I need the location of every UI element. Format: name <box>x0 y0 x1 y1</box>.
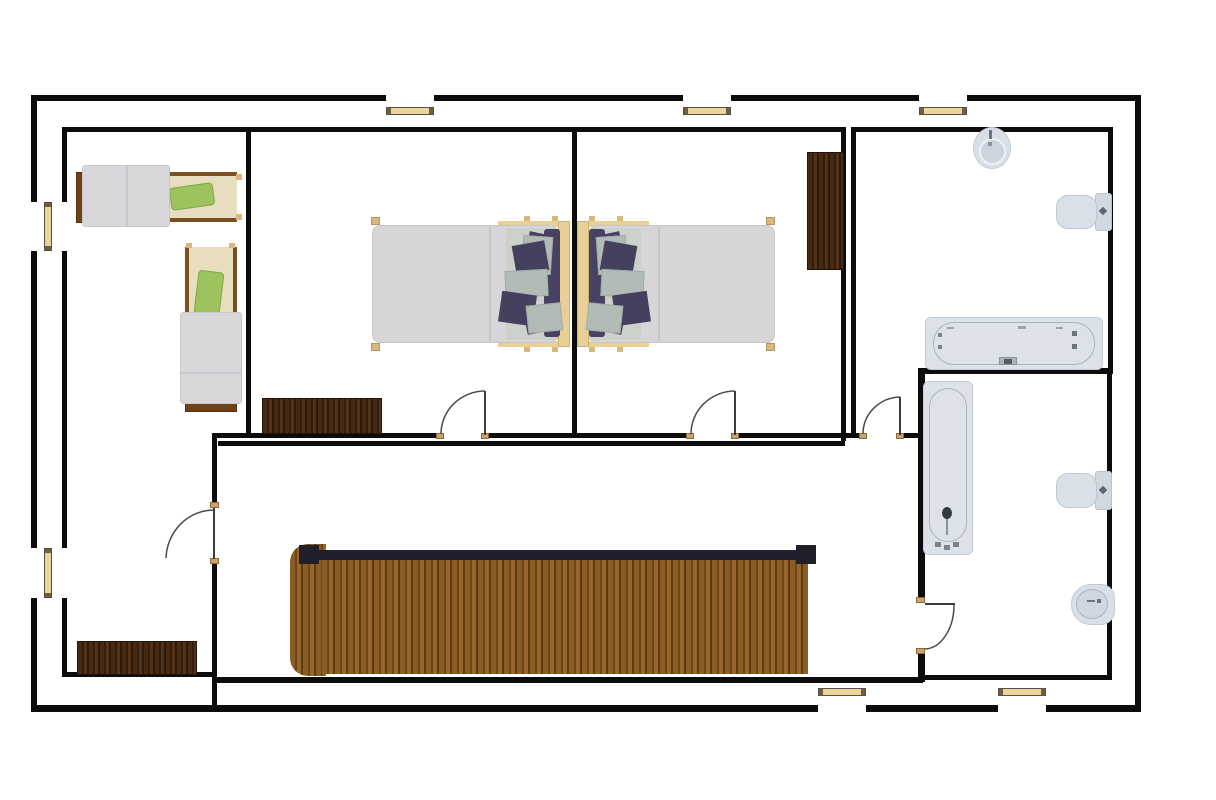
window-top-3[interactable] <box>919 107 967 115</box>
single-bed-a-part-9 <box>126 166 128 226</box>
outer-wall-top-1 <box>31 95 386 101</box>
bathroom2-bottom-wall <box>918 675 1112 680</box>
big-room-wall-left-2 <box>212 560 217 682</box>
left-room-wall-right <box>246 127 251 438</box>
left-room-wall-left-3 <box>62 598 67 677</box>
bathtub-bathroom-1-part-6 <box>1018 326 1026 329</box>
door-bathroom-1-swing-arc <box>862 396 902 435</box>
bidet-bathroom-2-part-3 <box>1087 600 1095 602</box>
single-bed-b-part-5 <box>186 243 192 248</box>
outer-wall-top-3 <box>731 95 919 101</box>
window-bottom-1[interactable] <box>818 688 866 696</box>
double-bed-2-part-1 <box>766 217 775 225</box>
door-bedroom-1-swing-arc <box>440 390 486 435</box>
double-bed-1-part-2 <box>371 343 380 351</box>
floor-plan-canvas <box>0 0 1216 800</box>
toilet-bathroom-2-part-2 <box>1056 473 1097 508</box>
outer-wall-left-1 <box>31 95 37 202</box>
bathtub-bathroom-1-part-11 <box>1004 359 1012 364</box>
door-left-room-swing-arc <box>166 508 216 560</box>
door-bathroom-2-swing-arc <box>924 604 956 650</box>
sink-bathroom-1-part-4 <box>988 142 992 146</box>
bathtub-bathroom-2-part-4 <box>946 519 948 535</box>
bathtub-bathroom-2-part-2 <box>929 388 967 542</box>
single-bed-a-part-5 <box>236 174 242 180</box>
bathroom1-right-wall <box>1108 127 1113 373</box>
window-bottom-2[interactable] <box>998 688 1046 696</box>
outer-wall-bottom-3 <box>1046 705 1141 712</box>
single-bed-b-part-9 <box>181 372 241 374</box>
window-top-2[interactable] <box>683 107 731 115</box>
bar-counter-part-3 <box>310 550 807 560</box>
left-room-wall-left-2 <box>62 251 67 548</box>
double-bed-2-part-20 <box>586 302 624 334</box>
bathtub-bathroom-2-part-3 <box>942 507 952 519</box>
double-bed-2-part-2 <box>766 343 775 351</box>
rooms-top-wall <box>62 127 845 132</box>
double-bed-2-part-12 <box>658 227 660 341</box>
outer-wall-bottom-1 <box>31 705 818 712</box>
sink-bathroom-1-part-2 <box>979 138 1006 165</box>
door-bedroom-2-swing-arc <box>690 390 736 435</box>
bathtub-bathroom-2-part-5 <box>935 542 941 547</box>
double-bed-1-part-1 <box>371 217 380 225</box>
single-bed-b-part-7 <box>193 270 224 317</box>
bedrooms-bottom-wall-2 <box>487 433 688 438</box>
bathroom1-left-wall <box>851 127 856 433</box>
outer-wall-right <box>1135 95 1141 712</box>
bedrooms-bottom-wall-3 <box>737 433 861 438</box>
bathtub-bathroom-1-part-7 <box>1056 327 1063 329</box>
big-room-top-wall <box>218 441 845 446</box>
window-top-1[interactable] <box>386 107 434 115</box>
outer-wall-bottom-2 <box>866 705 998 712</box>
bathtub-bathroom-1-part-4 <box>938 345 942 349</box>
bar-counter-part-4 <box>299 545 319 564</box>
outer-wall-top-4 <box>967 95 1141 101</box>
window-left-upper[interactable] <box>44 202 52 251</box>
dresser-bedroom-1-part-1 <box>262 398 382 434</box>
outer-wall-left-3 <box>31 598 37 712</box>
double-bed-1-part-20 <box>526 302 564 334</box>
bidet-bathroom-2-part-4 <box>1097 599 1101 603</box>
outer-wall-left-2 <box>31 251 37 548</box>
sink-bathroom-1-part-3 <box>989 130 992 139</box>
big-room-wall-left-1 <box>212 438 217 508</box>
single-bed-b-part-8 <box>180 312 242 404</box>
bathtub-bathroom-1-part-5 <box>947 327 954 329</box>
big-room-bottom-wall <box>212 677 923 683</box>
single-bed-b-part-6 <box>229 243 235 248</box>
bathtub-bathroom-2-part-7 <box>953 542 959 547</box>
door-bathroom-2-post-1 <box>916 597 925 603</box>
bedrooms-bottom-wall-4 <box>904 433 919 438</box>
double-bed-1-part-12 <box>489 227 491 341</box>
single-bed-a-part-6 <box>236 214 242 220</box>
bar-counter-part-2 <box>322 560 808 674</box>
outer-wall-top-2 <box>434 95 683 101</box>
bathtub-bathroom-1-part-9 <box>1072 344 1077 349</box>
cabinet-left-room-part-1 <box>77 641 197 675</box>
bar-counter-part-5 <box>796 545 816 564</box>
window-left-lower[interactable] <box>44 548 52 598</box>
bidet-bathroom-2-part-2 <box>1076 589 1108 619</box>
bathtub-bathroom-1-part-3 <box>938 333 942 337</box>
left-room-wall-left-1 <box>62 127 67 202</box>
bathroom2-right-wall <box>1107 373 1112 680</box>
toilet-bathroom-1-part-2 <box>1056 195 1097 229</box>
wardrobe-bedroom-2-part-1 <box>807 152 844 270</box>
bathtub-bathroom-2-part-6 <box>944 545 950 550</box>
bathtub-bathroom-1-part-8 <box>1072 331 1077 336</box>
